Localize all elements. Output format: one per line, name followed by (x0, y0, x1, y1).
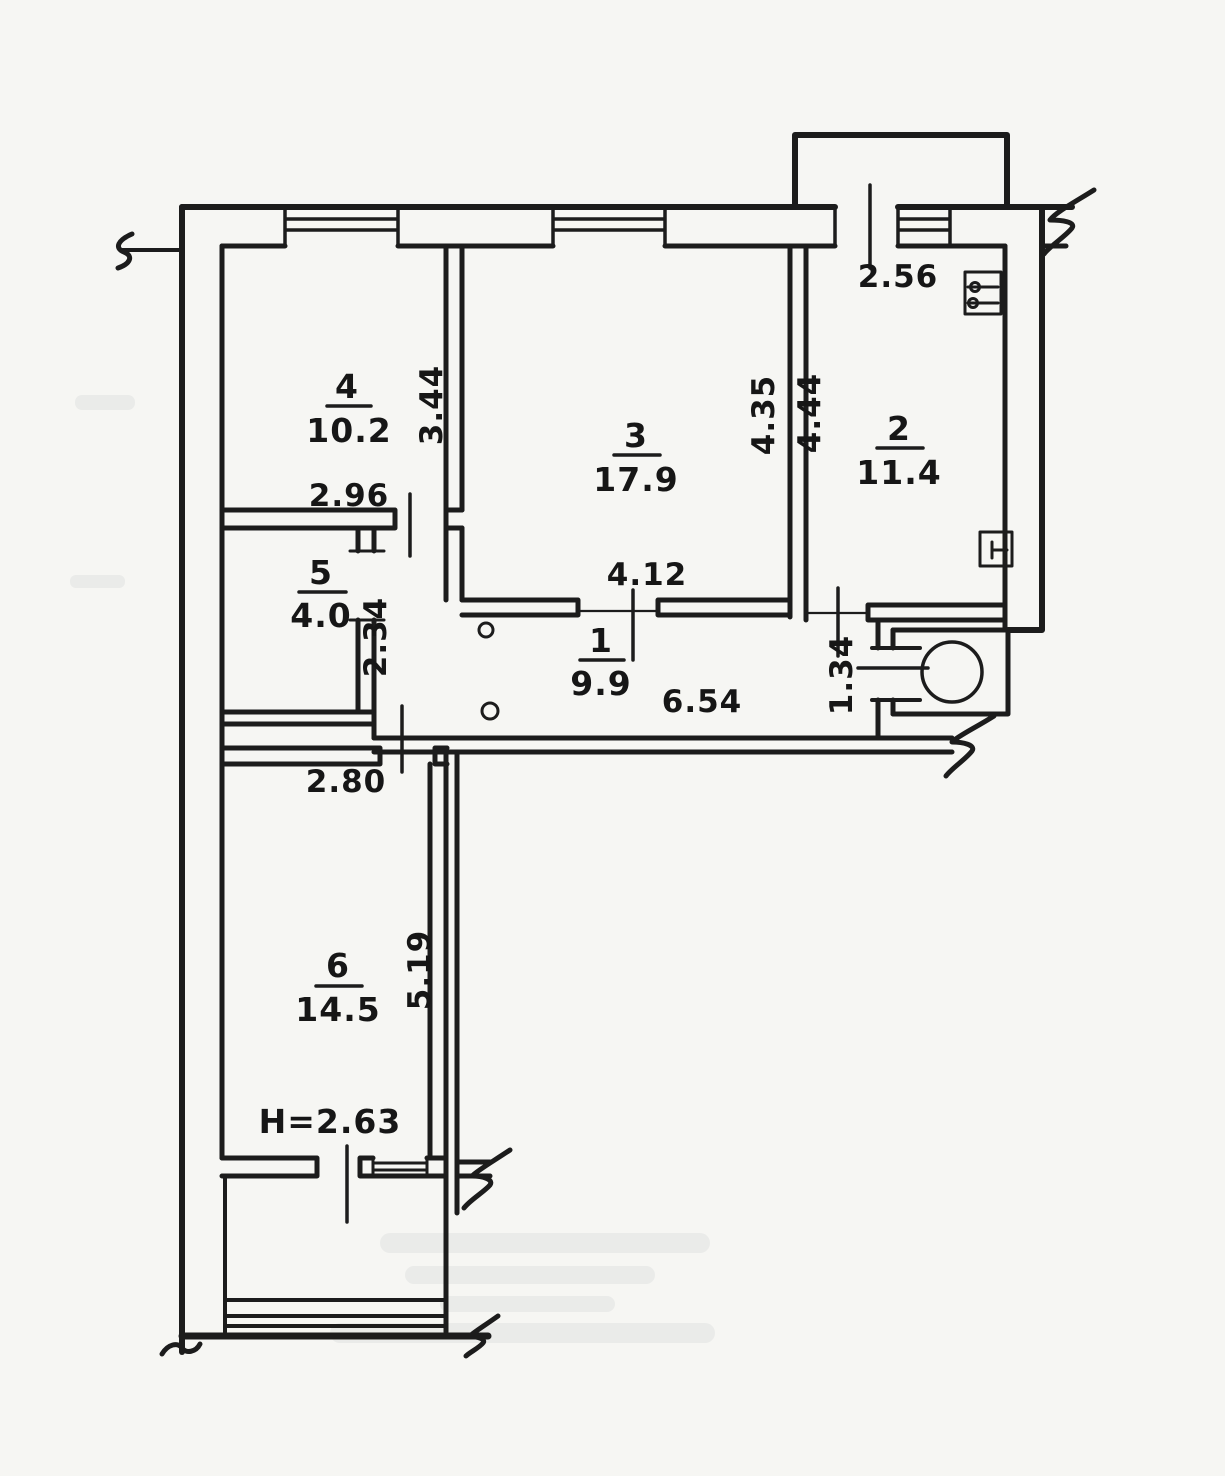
room-5-area: 4.0 (290, 596, 351, 635)
dim-hall-length: 6.54 (662, 684, 743, 720)
room-5-number: 5 (309, 553, 333, 592)
room-1-number: 1 (589, 621, 613, 660)
room-2-number: 2 (887, 409, 911, 448)
room-6-number: 6 (326, 946, 350, 985)
dim-room3-width: 4.12 (607, 557, 688, 593)
electrical-panel-icon (965, 272, 1001, 314)
dim-room6-depth: 5.19 (402, 930, 438, 1011)
room-4-number: 4 (335, 367, 359, 406)
room-4-area: 10.2 (306, 411, 391, 450)
top-balcony (795, 135, 1007, 205)
scanned-floor-plan-page: 4 10.2 3 17.9 2 11.4 5 4.0 1 9.9 6 14.5 … (0, 0, 1225, 1476)
entrance-column-circle (922, 642, 982, 702)
dim-room2-width: 2.56 (858, 259, 939, 295)
room-1-area: 9.9 (570, 664, 631, 703)
bottom-balcony (225, 1176, 446, 1332)
ceiling-height-note: H=2.63 (259, 1102, 402, 1141)
door-knob-circles (479, 623, 498, 719)
wall-break-icon (1044, 190, 1094, 254)
dim-room5-depth: 2.34 (358, 597, 394, 678)
dim-hall-entry-width: 1.34 (824, 635, 860, 716)
room-2-area: 11.4 (856, 453, 941, 492)
top-wall-windows (285, 207, 950, 246)
dim-room2-depth: 4.44 (792, 373, 828, 454)
room-6-area: 14.5 (295, 990, 380, 1029)
wall-break-icon (946, 716, 994, 776)
wall-break-icon (464, 1150, 510, 1208)
dim-room3-depth: 4.35 (746, 375, 782, 456)
wall-break-icons (118, 190, 1094, 1356)
room-3-number: 3 (624, 416, 648, 455)
exterior-walls (122, 207, 1072, 1352)
dim-room4-width: 2.96 (309, 478, 390, 514)
dim-room6-width: 2.80 (306, 764, 387, 800)
floor-plan-svg: 4 10.2 3 17.9 2 11.4 5 4.0 1 9.9 6 14.5 … (0, 0, 1225, 1476)
room-3-area: 17.9 (593, 460, 678, 499)
dim-room4-depth: 3.44 (414, 365, 450, 446)
bleed-through-artifact (70, 395, 715, 1343)
